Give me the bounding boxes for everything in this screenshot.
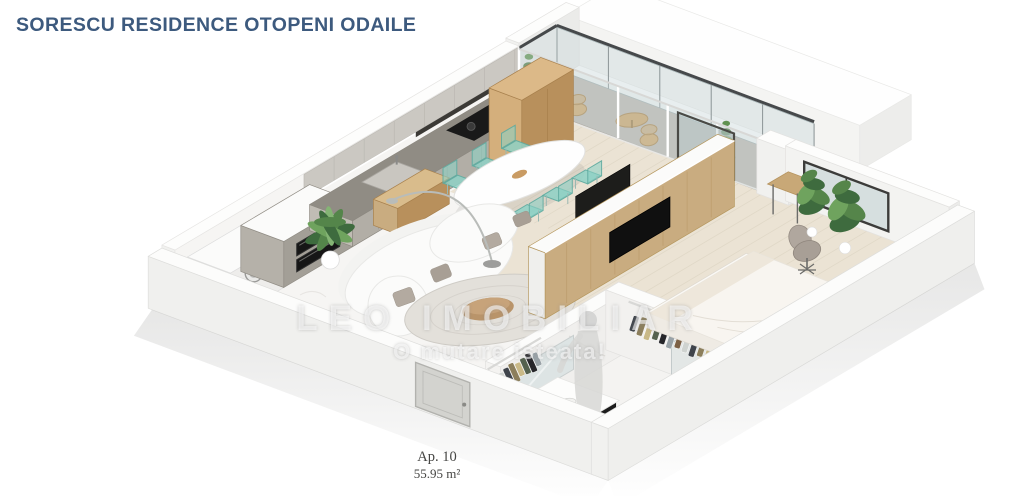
floorplan-page: SORESCU RESIDENCE OTOPENI ODAILE LEO IMO… <box>0 0 1024 496</box>
unit-area: 55.95 m² <box>357 466 517 481</box>
unit-number: Ap. 10 <box>417 449 456 465</box>
floorplan-render <box>0 0 1024 496</box>
unit-label: Ap. 10 55.95 m² <box>357 449 517 481</box>
page-title: SORESCU RESIDENCE OTOPENI ODAILE <box>16 14 416 37</box>
